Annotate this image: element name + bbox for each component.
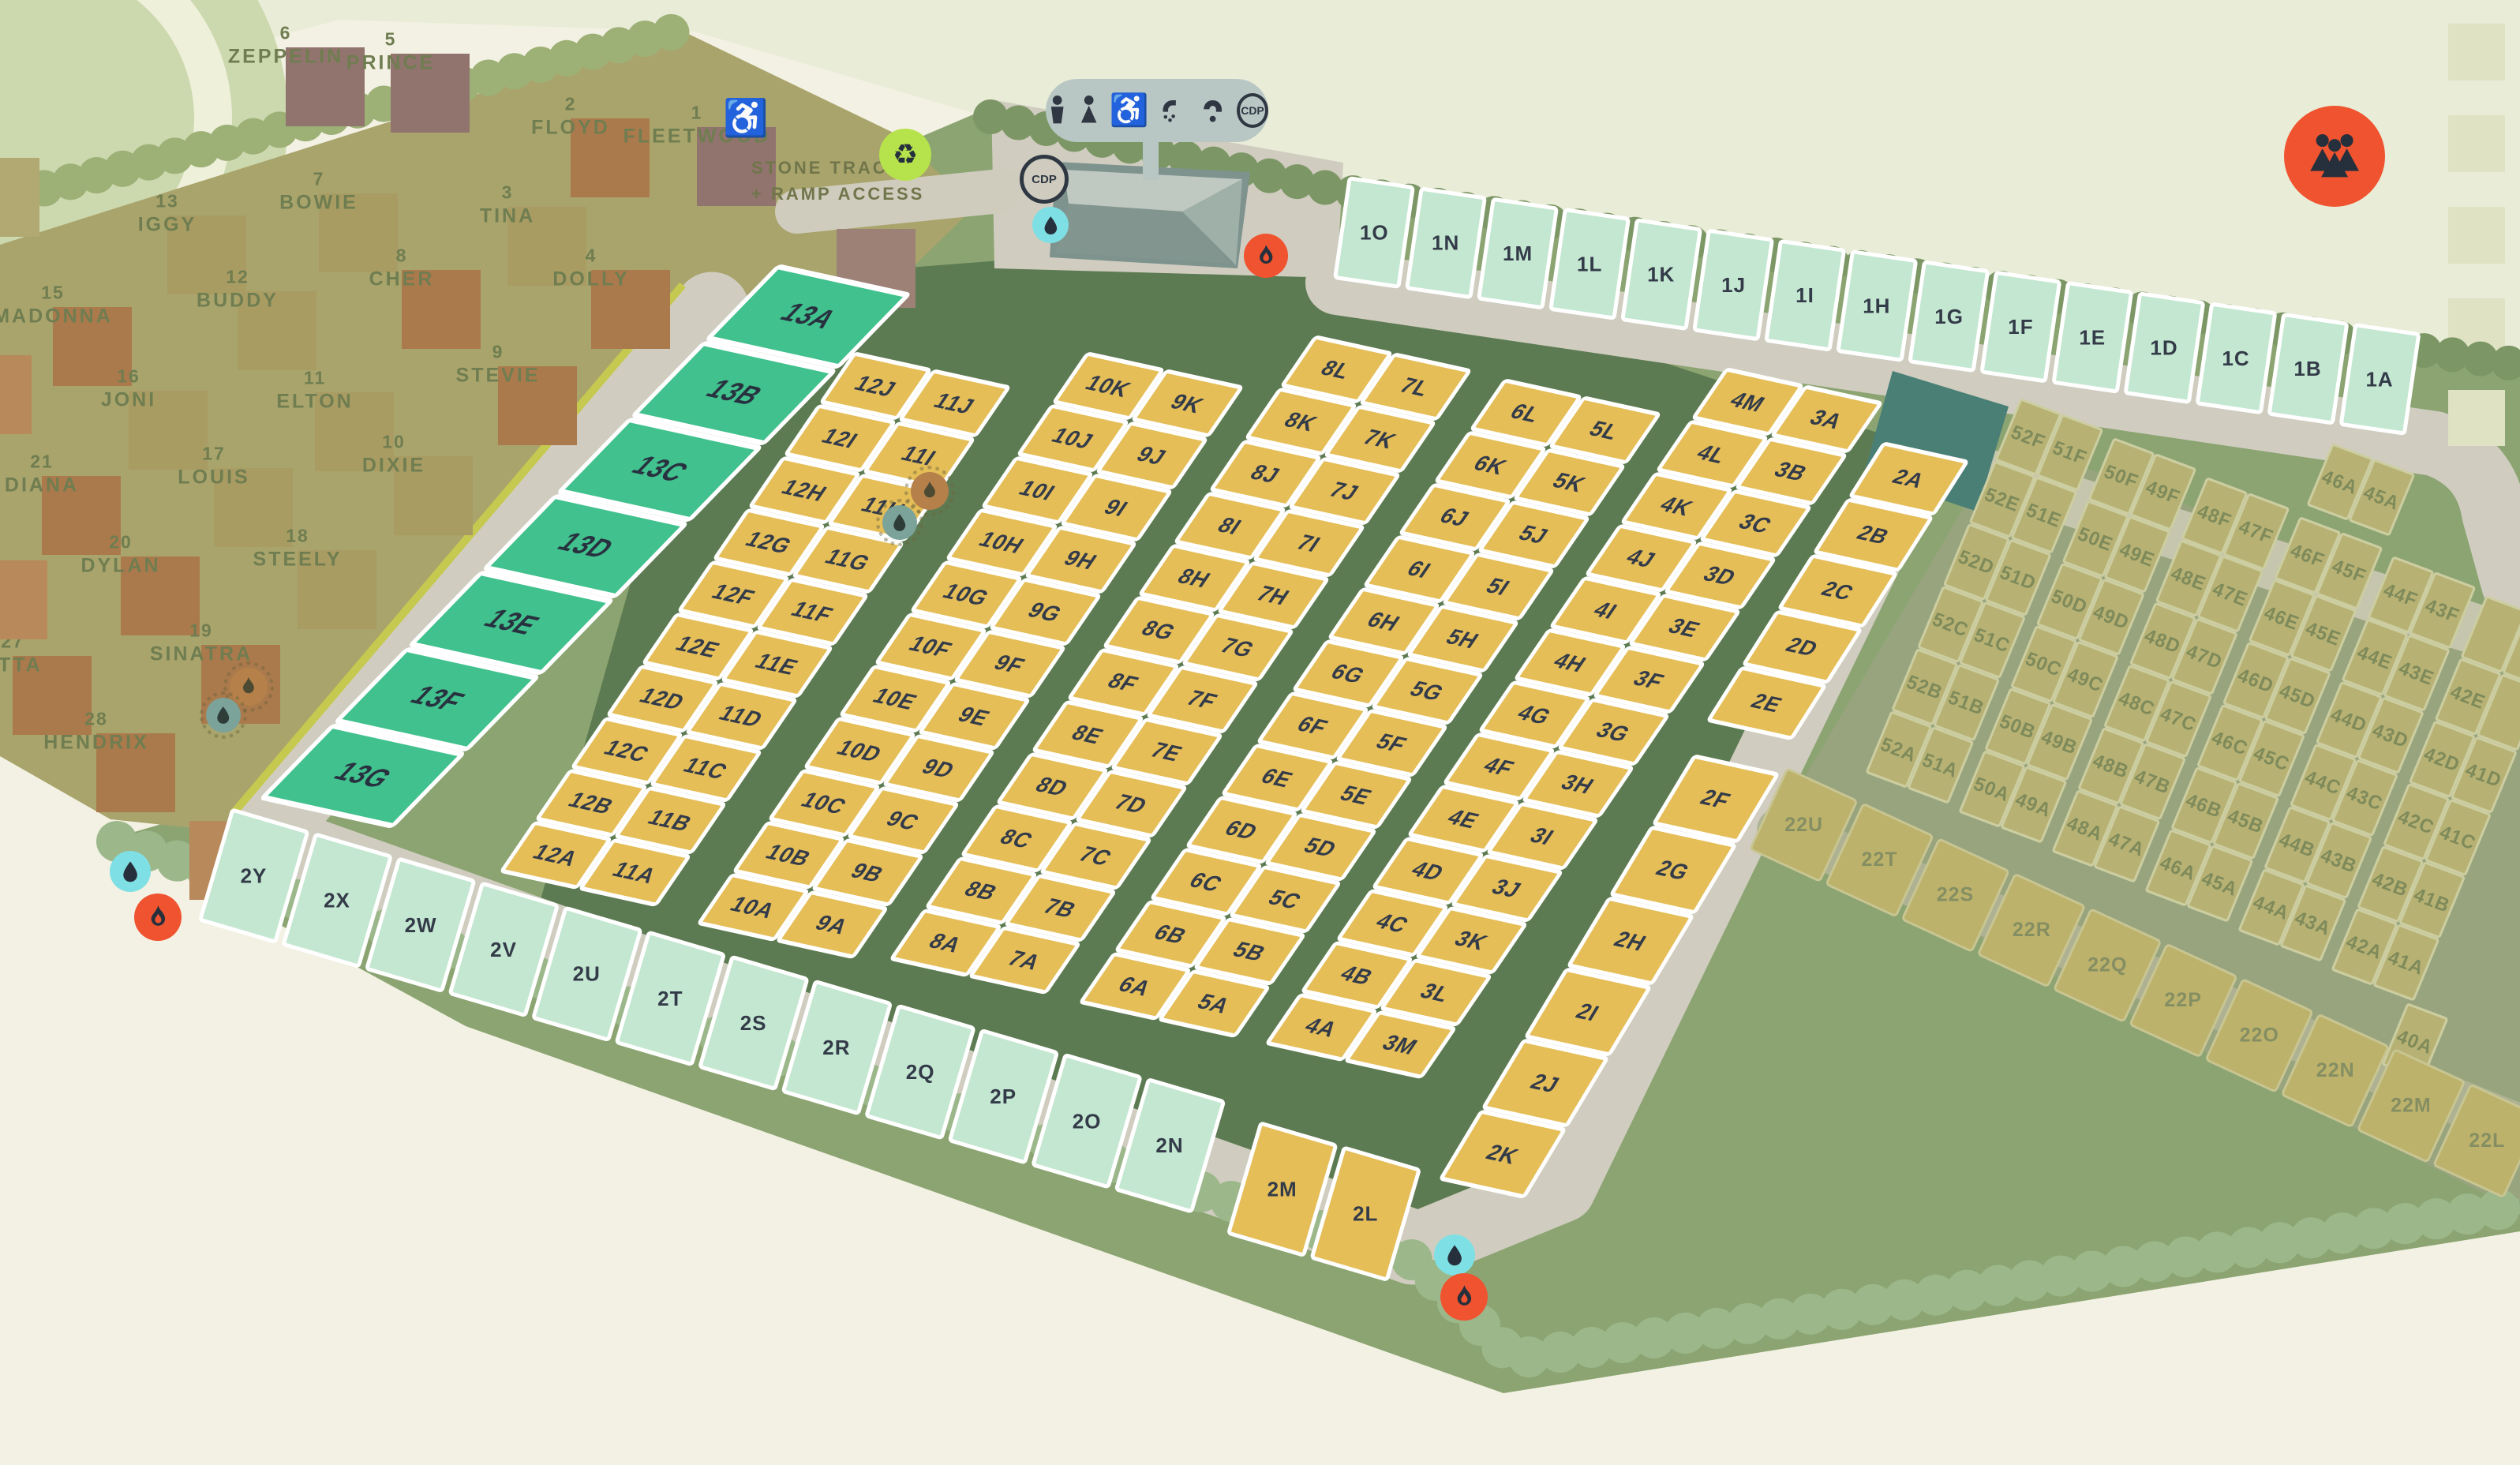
water-point[interactable] xyxy=(882,505,917,540)
pitch-cell[interactable]: 1E xyxy=(2051,281,2133,394)
plot-label: 13 IGGY xyxy=(73,190,262,238)
pitch-cell[interactable]: 1F xyxy=(1979,271,2061,384)
pitch-cell[interactable]: 1L xyxy=(1548,208,1631,320)
family-icon xyxy=(2305,127,2364,185)
pitch-cell[interactable]: 1B xyxy=(2267,313,2349,425)
fire-point[interactable] xyxy=(230,668,268,706)
pitch-cell[interactable]: 1N xyxy=(1405,186,1487,299)
fire-point[interactable] xyxy=(1244,234,1288,278)
sign-stem xyxy=(1143,136,1159,180)
pitch-cell[interactable]: 1G xyxy=(1908,260,1990,373)
plot-label: 4 DOLLY xyxy=(496,245,686,292)
water-point[interactable] xyxy=(1434,1235,1475,1276)
pitch-cell[interactable]: 1J xyxy=(1692,228,1774,341)
plot-label: 3 TINA xyxy=(413,182,602,229)
plot-label: 9 STEVIE xyxy=(403,341,593,388)
stone-track-note: STONE TRACK+ RAMP ACCESS xyxy=(751,155,988,207)
pitch-cell[interactable]: 1M xyxy=(1477,197,1559,310)
fire-point[interactable] xyxy=(911,472,949,510)
pitch-cell[interactable]: 1O xyxy=(1333,176,1415,289)
water-point[interactable] xyxy=(206,698,241,732)
shower-icon xyxy=(1158,93,1189,128)
plot-label: 28 HENDRIX xyxy=(2,708,191,755)
accessible-pitch-icon: ♿ xyxy=(723,96,768,140)
cdp-badge: CDP xyxy=(1237,93,1268,128)
plot-label: 18 STEELY xyxy=(203,525,392,572)
plot-label: 8 CHER xyxy=(307,245,496,292)
family-camping-point[interactable] xyxy=(2284,106,2385,207)
pitch-cell[interactable]: 1C xyxy=(2195,302,2277,414)
cdp-point[interactable]: CDP xyxy=(1020,155,1069,204)
pitch-cell[interactable]: 1I xyxy=(1764,239,1846,352)
plot-label: 20 DYLAN xyxy=(26,531,215,579)
water-tap-icon xyxy=(1197,93,1228,128)
plot-label: 17 LOUIS xyxy=(119,443,309,490)
plot-label: 11 ELTON xyxy=(220,367,410,414)
fire-point[interactable] xyxy=(134,894,182,941)
pitch-cell[interactable]: 1H xyxy=(1836,249,1918,362)
fire-point[interactable] xyxy=(1440,1273,1488,1321)
plot-label: 21 DIANA xyxy=(0,451,137,498)
water-point[interactable] xyxy=(110,851,151,892)
plot-label: 5 PRINCE xyxy=(296,28,485,76)
pitch-cell[interactable]: 1K xyxy=(1620,218,1702,331)
womens-icon xyxy=(1077,93,1100,128)
pitch-cell[interactable]: 1D xyxy=(2123,291,2205,404)
plot-label: 16 JONI xyxy=(34,365,223,413)
plot-label: 10 DIXIE xyxy=(299,431,489,478)
accessible-icon: ♿ xyxy=(1110,95,1149,126)
campsite-map: 6 ZEPPELIN 5 PRINCE 2 FLOYD 1 FLEETWOOD xyxy=(0,0,2520,1465)
plot-label: 19 SINATRA xyxy=(107,620,296,667)
plot-label: 15 MADONNA xyxy=(0,282,148,329)
plot-label: 12 BUDDY xyxy=(143,266,332,313)
mens-icon xyxy=(1046,93,1069,128)
water-point[interactable] xyxy=(1032,207,1069,243)
recycling-point[interactable]: ♻ xyxy=(879,129,931,181)
facilities-sign[interactable]: ♿ CDP xyxy=(1046,79,1268,142)
